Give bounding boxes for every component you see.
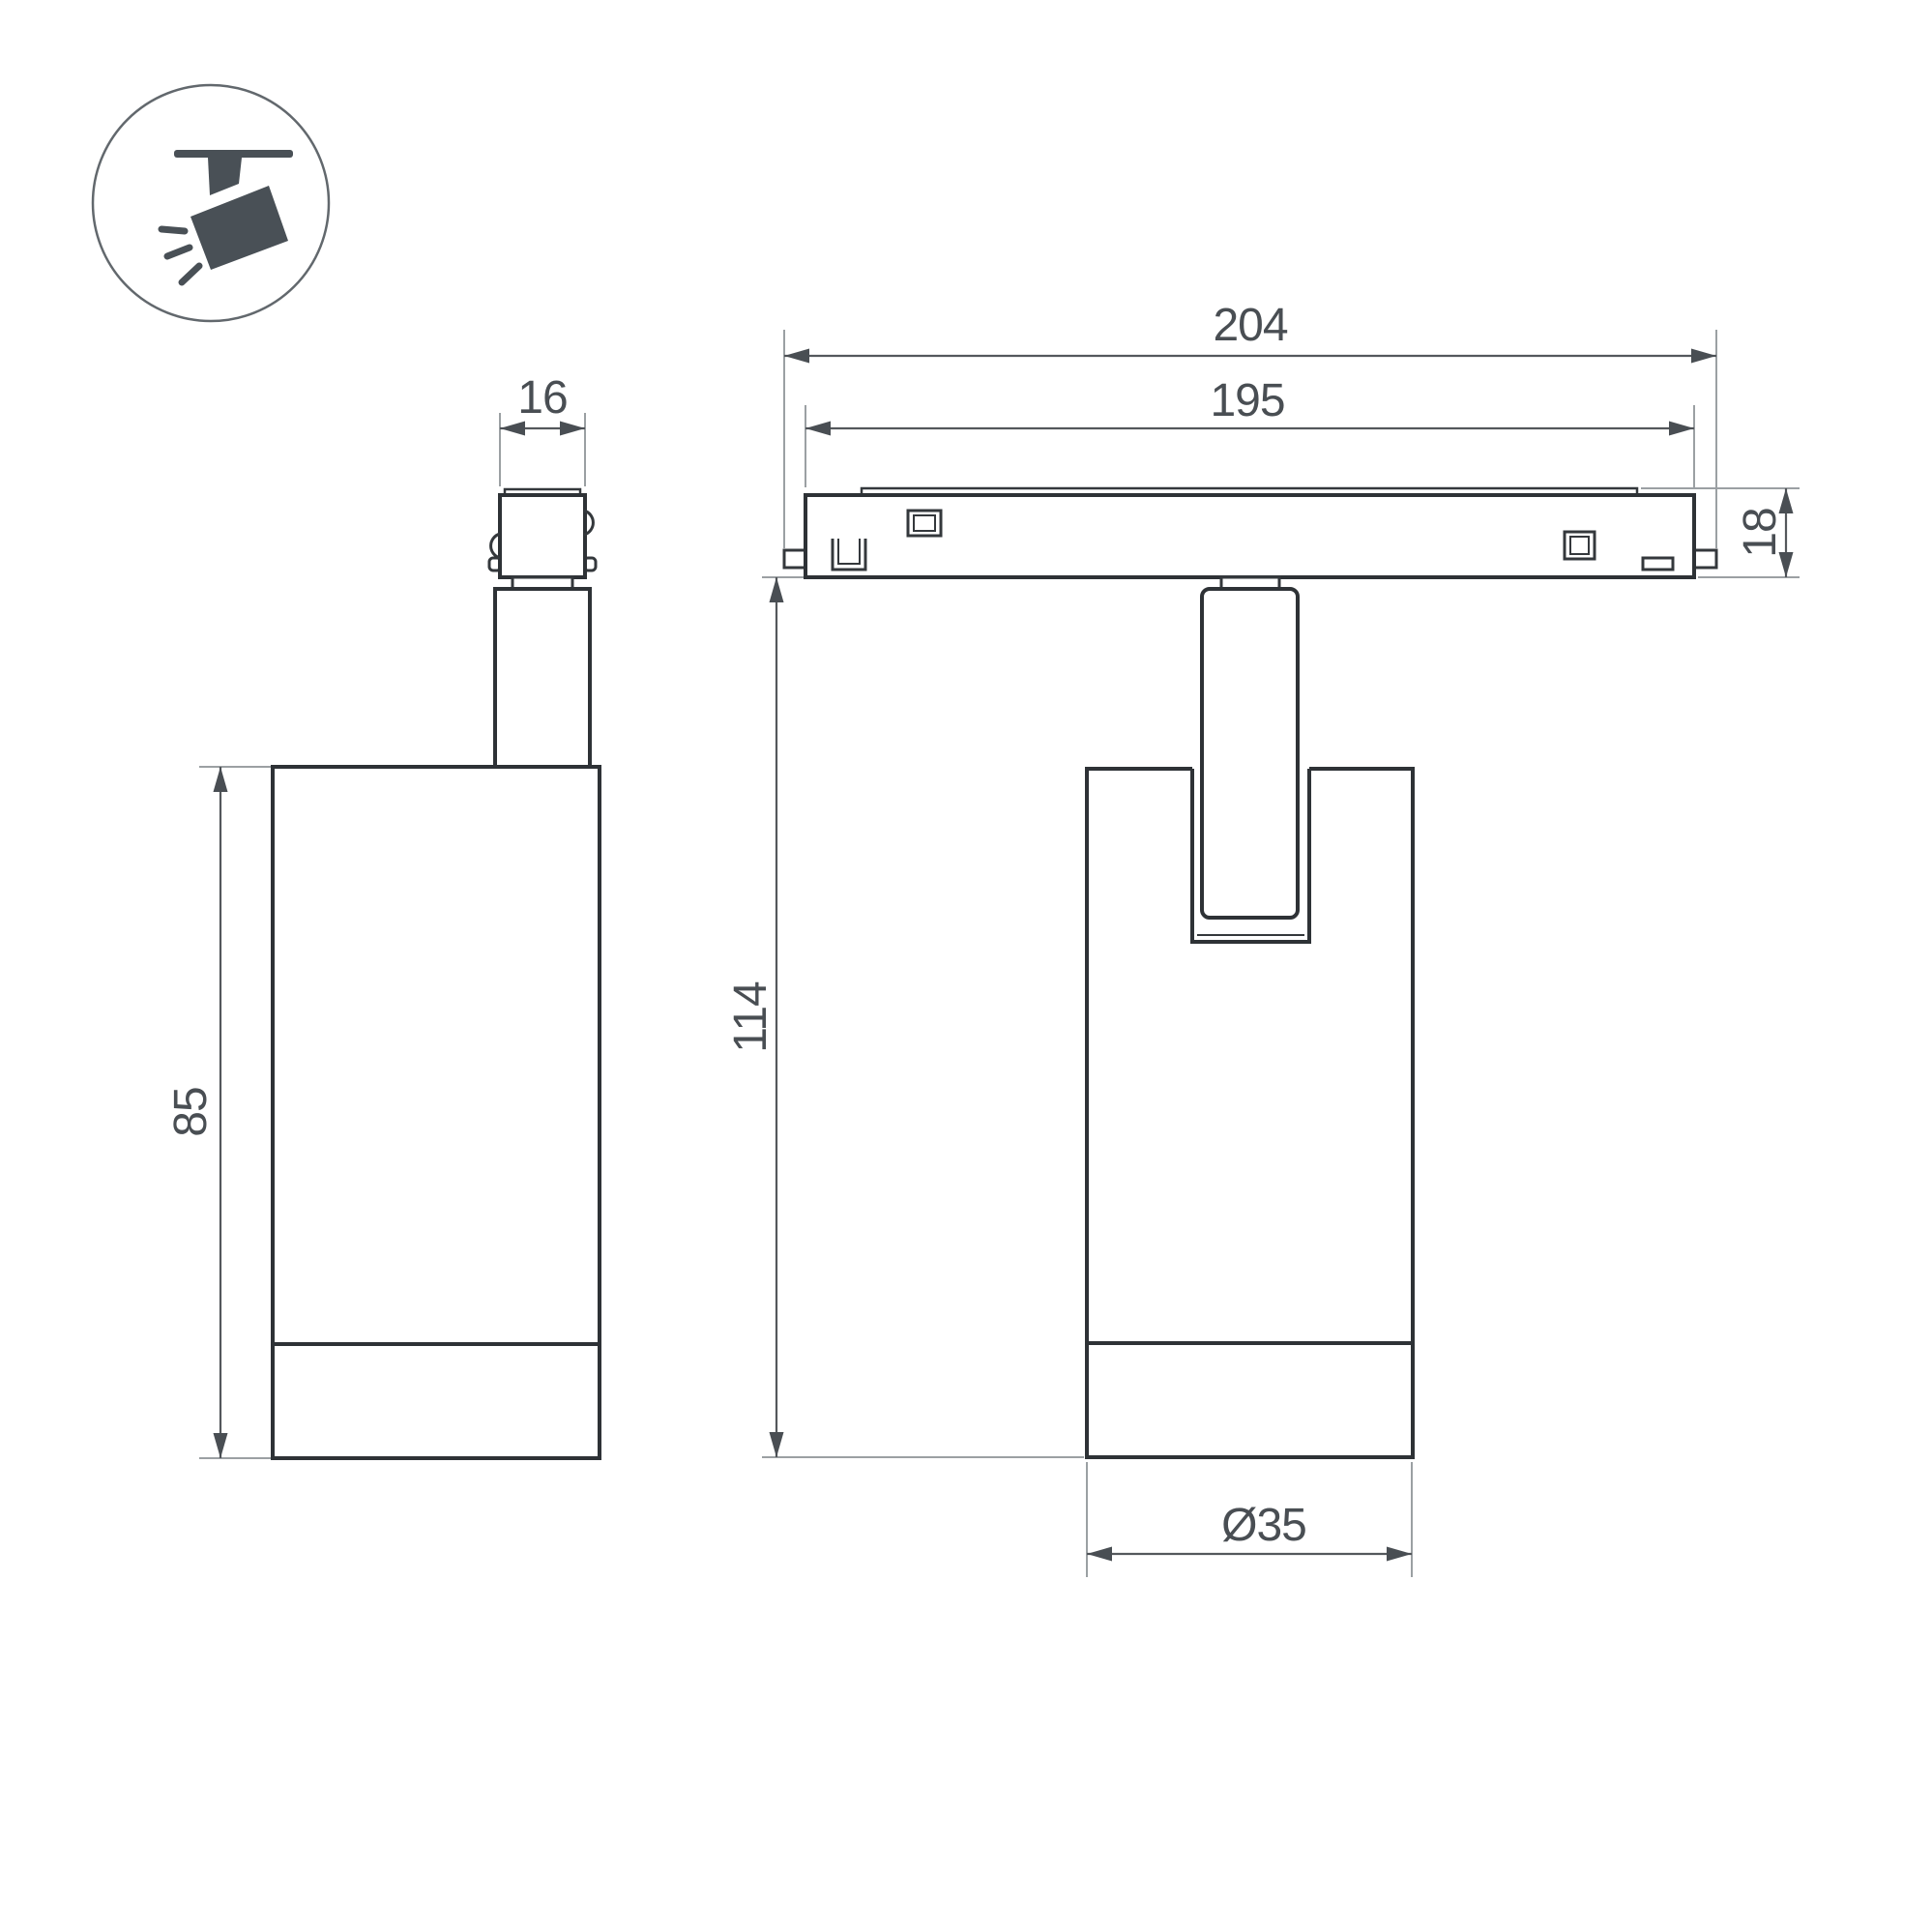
- dim-label-body-height: 85: [165, 1087, 217, 1136]
- track-end-tab-right: [1694, 550, 1716, 568]
- arrow-down: [770, 1432, 784, 1457]
- track-adapter-block: [500, 495, 585, 577]
- arrow-right: [1387, 1547, 1412, 1562]
- drawing-page: 16 204 195 18 114 85 Ø35: [0, 0, 1932, 1932]
- arrow-up: [214, 767, 228, 792]
- arrow-left: [805, 422, 831, 436]
- dim-label-total-height: 114: [725, 981, 776, 1053]
- arrow-right: [1691, 349, 1716, 364]
- fixture-stem-front: [1202, 589, 1298, 918]
- arrow-left: [784, 349, 809, 364]
- fixture-stem-side: [495, 589, 590, 767]
- arrow-right: [1669, 422, 1694, 436]
- icon-circle: [93, 85, 329, 321]
- arrow-up: [770, 577, 784, 602]
- arrow-left: [1087, 1547, 1112, 1562]
- side-view: [273, 489, 600, 1458]
- dim-label-track-height: 18: [1735, 508, 1786, 557]
- lamp-body-side: [273, 767, 600, 1458]
- icon-track-bar: [174, 150, 293, 158]
- arrow-down: [214, 1433, 228, 1458]
- dim-label-track-length: 195: [1210, 375, 1284, 426]
- track-slot-right: [1643, 558, 1673, 570]
- dim-label-body-diameter: Ø35: [1221, 1500, 1306, 1551]
- dim-label-adapter-width: 16: [517, 372, 567, 424]
- light-ray-icon: [161, 229, 185, 231]
- dim-label-overall-length: 204: [1213, 300, 1287, 351]
- spotlight-icon: [93, 85, 329, 321]
- technical-drawing: 16 204 195 18 114 85 Ø35: [0, 0, 1932, 1932]
- track-end-tab-left: [784, 550, 805, 568]
- front-view: [784, 488, 1716, 1457]
